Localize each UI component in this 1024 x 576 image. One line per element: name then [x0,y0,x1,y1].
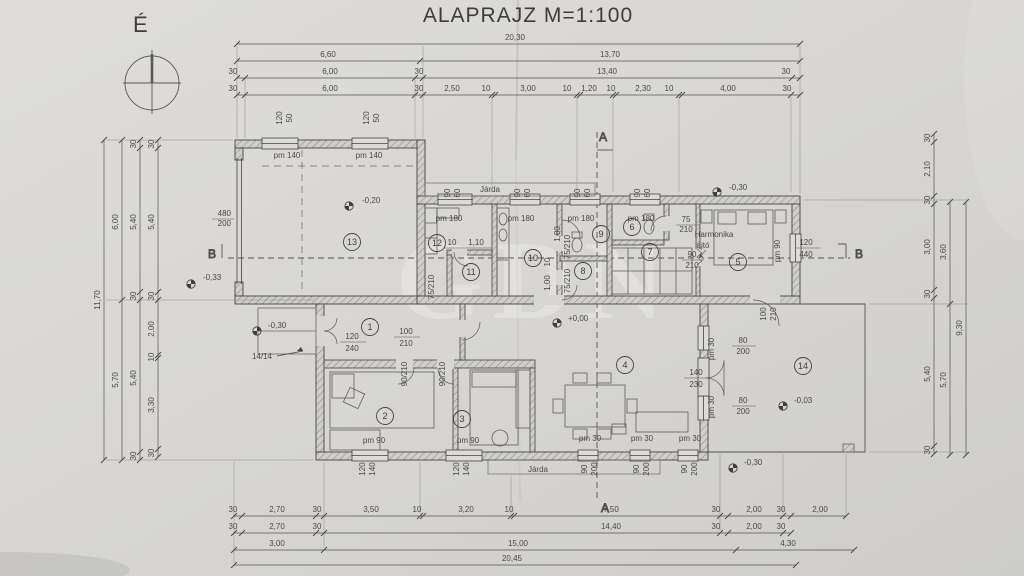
text-label: 75/210 [563,268,572,293]
text-label: 3,30 [147,397,156,413]
text-label: 30 [313,505,322,514]
text-label: 30 [712,522,721,531]
text-label: 14/14 [252,352,273,361]
text-label: 210 [399,339,413,348]
text-label: 10 [147,352,156,361]
drawing-title: ALAPRAJZ M=1:100 [423,4,633,27]
text-label: 120 [362,111,371,125]
text-label: 9,30 [955,320,964,336]
text-label: 5,40 [923,366,932,382]
text-label: 2,30 [635,84,651,93]
text-label: 480 [218,209,232,218]
text-label: 200 [642,462,651,476]
text-label: 30 [712,505,721,514]
text-label: 90 [632,464,641,473]
text-label: 30 [783,84,792,93]
text-label: -0,30 [729,183,748,192]
text-label: 5,40 [129,370,138,386]
text-label: -0,30 [744,458,763,467]
text-label: 30 [147,291,156,300]
text-label: 10 [448,238,457,247]
svg-text:6: 6 [629,222,634,232]
garage-window [262,138,298,149]
text-label: 10 [413,505,422,514]
text-label: 210 [685,261,699,270]
section-letter-b-left: B [208,247,216,261]
text-label: 30 [129,139,138,148]
text-label: 230 [689,380,703,389]
text-label: 60 [583,188,592,197]
text-label: 200 [590,462,599,476]
text-label: 3,00 [520,84,536,93]
text-label: 20,45 [502,554,523,563]
text-label: 6,00 [322,84,338,93]
text-label: 100 [759,307,768,321]
svg-text:9: 9 [598,229,603,239]
text-label: 1,00 [543,275,552,291]
svg-text:11: 11 [466,267,475,277]
text-label: 5,70 [939,372,948,388]
text-label: 210 [679,225,693,234]
text-label: 13,70 [600,50,621,59]
text-label: 1,20 [581,84,597,93]
text-label: 30 [923,289,932,298]
text-label: -0,20 [362,196,381,205]
text-label: -0,33 [203,273,222,282]
level-marker [345,202,353,210]
text-label: -0,03 [794,396,813,405]
text-label: 120 [275,111,284,125]
svg-text:10: 10 [528,253,538,263]
text-label: pm 30 [679,434,702,443]
text-label: 30 [923,195,932,204]
text-label: 90 [688,250,697,259]
text-label: 30 [923,133,932,142]
svg-text:5: 5 [735,257,740,267]
text-label: 75/210 [427,274,436,299]
text-label: 50 [372,113,381,122]
text-label: 60 [453,188,462,197]
text-label: 90 [573,188,582,197]
text-label: 10 [665,84,674,93]
text-label: 4,30 [780,539,796,548]
text-label: pm 180 [436,214,463,223]
text-label: 120 [799,238,813,247]
text-label: 90/210 [438,361,447,386]
level-marker [729,464,737,472]
text-label: pm 140 [356,151,383,160]
garage-window [352,138,388,149]
text-label: 6,60 [320,50,336,59]
text-label: 5,40 [129,214,138,230]
text-label: 90 [443,188,452,197]
text-label: 30 [782,67,791,76]
text-label: 3,00 [923,239,932,255]
text-label: pm 30 [707,395,716,418]
text-label: 10 [482,84,491,93]
text-label: 90 [633,188,642,197]
text-label: 10 [607,84,616,93]
text-label: 2,50 [444,84,460,93]
text-label: pm 90 [363,436,386,445]
text-label: pm 90 [773,239,782,262]
text-label: 90 [513,188,522,197]
south-window [678,450,698,461]
svg-text:12: 12 [432,238,442,248]
text-label: 2,00 [812,505,828,514]
text-label: 10 [505,505,514,514]
text-label: 120 [358,462,367,476]
svg-text:13: 13 [347,237,357,247]
text-label: 13,40 [597,67,618,76]
svg-text:14: 14 [798,361,808,371]
text-label: 30 [415,67,424,76]
text-label: 90 [580,464,589,473]
text-label: 1,80 [553,226,562,242]
terrace-door-opening [698,358,709,396]
text-label: 200 [218,219,232,228]
text-label: pm 30 [579,434,602,443]
text-label: 60 [523,188,532,197]
svg-text:7: 7 [647,247,652,257]
text-label: 15,00 [508,539,529,548]
text-label: 140 [689,368,703,377]
level-marker [253,327,261,335]
text-label: Járda [480,185,501,194]
text-label: ajtó [697,241,710,250]
text-label: 14,40 [601,522,622,531]
text-label: 1,10 [468,238,484,247]
text-label: pm 180 [568,214,595,223]
text-label: pm 90 [457,436,480,445]
text-label: 50 [285,113,294,122]
text-label: 100 [399,327,413,336]
south-window [352,450,388,461]
text-label: 30 [129,451,138,460]
text-label: pm 30 [707,337,716,360]
text-label: 20,30 [505,33,526,42]
south-window [630,450,650,461]
svg-text:8: 8 [580,266,585,276]
text-label: 30 [147,139,156,148]
text-label: 2,00 [147,321,156,337]
text-label: pm 180 [628,214,655,223]
text-label: 200 [736,347,750,356]
text-label: 200 [690,462,699,476]
text-label: 30 [415,84,424,93]
text-label: 240 [345,344,359,353]
text-label: Harmonika [695,230,734,239]
text-label: 90 [680,464,689,473]
section-letter-a-top: A [599,130,607,144]
text-label: 120 [452,462,461,476]
svg-text:2: 2 [382,411,387,421]
text-label: 7,50 [603,505,619,514]
text-label: 80 [739,336,748,345]
svg-text:4: 4 [622,360,627,370]
compass-north-letter: É [133,12,148,37]
south-window [578,450,598,461]
text-label: 3,50 [363,505,379,514]
scanned-floor-plan-photo: GDN ALAPRAJZ M=1:100 É A A B B [0,0,1024,576]
text-label: 11,70 [93,290,102,310]
text-label: 30 [313,522,322,531]
text-label: 10 [563,84,572,93]
svg-text:1: 1 [367,322,372,332]
text-label: 2,10 [923,161,932,177]
text-label: 10 [543,257,552,266]
level-marker [553,319,561,327]
text-label: 2,00 [746,522,762,531]
text-label: 440 [799,250,813,259]
level-marker [187,280,195,288]
south-window [446,450,482,461]
text-label: 200 [736,407,750,416]
text-label: 2,70 [269,522,285,531]
text-label: 30 [229,67,238,76]
level-marker [713,188,721,196]
text-label: pm 140 [274,151,301,160]
text-label: 30 [923,445,932,454]
text-label: 140 [368,462,377,476]
text-label: 6,00 [111,214,120,230]
text-label: 2,00 [746,505,762,514]
text-label: Járda [528,465,549,474]
text-label: 120 [345,332,359,341]
text-label: 75/210 [563,234,572,259]
text-label: 2,70 [269,505,285,514]
text-label: 30 [777,522,786,531]
text-label: 6,00 [322,67,338,76]
text-label: 80 [739,396,748,405]
text-label: 3,00 [269,539,285,548]
text-label: 210 [769,307,778,321]
text-label: 60 [643,188,652,197]
text-label: 4,00 [720,84,736,93]
text-label: 90/210 [400,361,409,386]
text-label: 5,70 [111,372,120,388]
text-label: 5,40 [147,214,156,230]
text-label: 75 [682,215,691,224]
floor-plan-svg: GDN ALAPRAJZ M=1:100 É A A B B [0,0,1024,576]
text-label: 30 [147,448,156,457]
text-label: 30 [129,291,138,300]
text-label: +0,00 [568,314,589,323]
text-label: 140 [462,462,471,476]
text-label: 30 [229,522,238,531]
text-label: 3,20 [458,505,474,514]
text-label: -0,30 [268,321,287,330]
text-label: pm 30 [631,434,654,443]
text-label: 3,60 [939,244,948,260]
svg-text:3: 3 [459,414,464,424]
text-label: 30 [229,84,238,93]
text-label: 30 [777,505,786,514]
text-label: 30 [229,505,238,514]
section-letter-b-right: B [855,247,863,261]
text-label: pm 180 [508,214,535,223]
level-marker [779,402,787,410]
